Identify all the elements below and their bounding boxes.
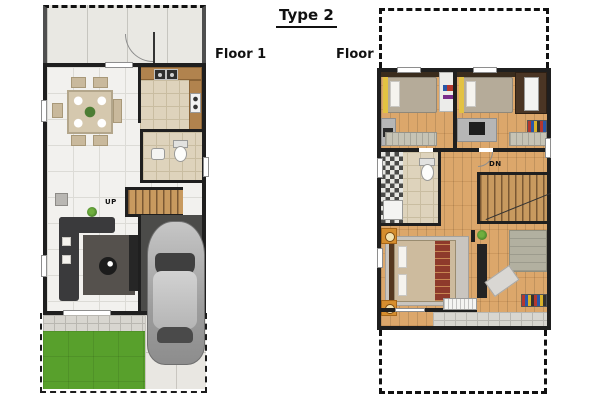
car-rear-window bbox=[157, 327, 193, 343]
bedroom-divider-wall bbox=[453, 72, 457, 150]
shower-icon bbox=[383, 200, 403, 220]
bed-pillow-strip-icon bbox=[383, 77, 388, 113]
window-icon bbox=[473, 67, 497, 73]
bathroom-sink-icon bbox=[151, 148, 165, 160]
roof-outline-top bbox=[379, 8, 549, 68]
dresser-icon bbox=[509, 132, 547, 146]
bathroom-floor2 bbox=[381, 152, 441, 226]
closet-door-icon bbox=[524, 77, 539, 111]
stairs-dn-label: DN bbox=[489, 160, 502, 168]
floor1-label: Floor 1 bbox=[215, 47, 266, 62]
bed-runner-icon bbox=[435, 241, 450, 301]
page-title: Type 2 bbox=[276, 6, 337, 28]
floor2-plan: DN bbox=[377, 8, 553, 398]
terrace-door-leaf-icon bbox=[153, 32, 155, 64]
window-icon bbox=[377, 158, 383, 178]
stairs-floor2 bbox=[477, 172, 547, 224]
plant-icon bbox=[477, 230, 487, 240]
study-counter-icon bbox=[509, 230, 547, 272]
terrace-door-arc-icon bbox=[125, 34, 153, 62]
back-door-opening bbox=[105, 62, 133, 68]
kitchen-sink-icon bbox=[166, 69, 178, 80]
window-icon bbox=[397, 67, 421, 73]
dining-chair-icon bbox=[71, 77, 86, 88]
floor1-plan: UP bbox=[35, 5, 215, 392]
window-icon bbox=[41, 255, 47, 277]
tv-console-icon bbox=[477, 244, 487, 298]
plant-icon bbox=[87, 207, 97, 217]
ac-unit-icon bbox=[443, 298, 477, 310]
toilet-icon bbox=[174, 146, 187, 162]
roof-outline-bottom bbox=[379, 330, 547, 394]
side-table-icon bbox=[55, 193, 68, 206]
car-roof bbox=[153, 271, 197, 329]
dining-bench-icon bbox=[113, 99, 122, 123]
window-icon bbox=[377, 248, 383, 268]
bed-pillow-strip-icon bbox=[459, 77, 464, 113]
master-bed-icon bbox=[394, 240, 456, 302]
car-icon bbox=[147, 221, 203, 363]
window-icon bbox=[203, 157, 209, 177]
closet-icon bbox=[515, 72, 547, 114]
laptop-icon bbox=[469, 122, 485, 135]
sofa-pillow-icon bbox=[62, 255, 71, 264]
stairs-up-label: UP bbox=[105, 198, 117, 206]
toilet-icon bbox=[421, 164, 434, 181]
pillow-icon bbox=[466, 81, 476, 107]
floorplan-page: { "title": "Type 2", "floor1": { "label"… bbox=[0, 0, 600, 400]
stairs-floor1 bbox=[125, 187, 183, 217]
floor2-house: DN bbox=[377, 68, 551, 330]
dining-chair-icon bbox=[93, 135, 108, 146]
stove-icon bbox=[190, 93, 201, 113]
kitchen-sink-icon bbox=[154, 69, 166, 80]
dining-chair-icon bbox=[93, 77, 108, 88]
dresser-icon bbox=[385, 132, 437, 146]
window-icon bbox=[545, 138, 551, 158]
pillow-icon bbox=[398, 274, 407, 296]
bookshelf-icon bbox=[521, 294, 547, 307]
terrace bbox=[43, 5, 206, 65]
sofa-pillow-icon bbox=[62, 237, 71, 246]
dining-chair-icon bbox=[71, 135, 86, 146]
window-icon bbox=[41, 100, 47, 122]
dining-chair-icon bbox=[52, 103, 63, 118]
kitchen-divider-wall bbox=[138, 67, 141, 123]
balcony bbox=[433, 312, 547, 326]
pillow-icon bbox=[398, 246, 407, 268]
nightstand-lamp-icon bbox=[381, 228, 397, 244]
tv-console-icon bbox=[129, 235, 138, 291]
coffee-table-icon bbox=[99, 257, 117, 275]
master-wall bbox=[471, 230, 475, 242]
window-icon bbox=[395, 308, 425, 312]
bathroom-floor1 bbox=[140, 129, 202, 183]
dining-table-icon bbox=[67, 90, 113, 134]
pillow-icon bbox=[390, 81, 400, 107]
stairs-diagonal-line bbox=[486, 193, 551, 220]
